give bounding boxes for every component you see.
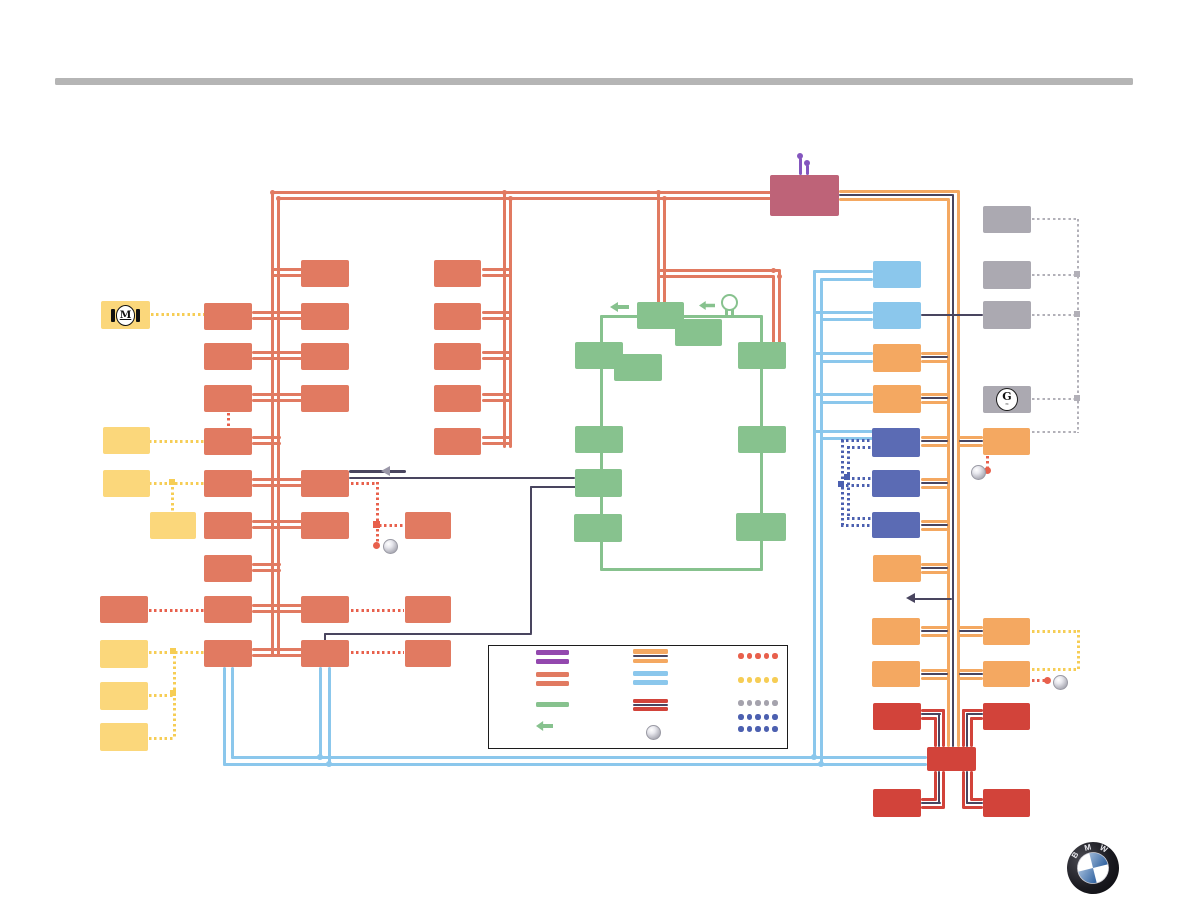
bus-line [509, 197, 512, 448]
motor-letter: M [116, 305, 136, 326]
ecu-block[interactable] [872, 512, 920, 538]
bus-line [277, 197, 771, 200]
dotted-link [351, 651, 404, 654]
bus-line [921, 630, 948, 632]
bus-line [839, 198, 949, 201]
bus-line [957, 190, 960, 747]
bus-line [921, 563, 948, 566]
ecu-block[interactable] [872, 618, 920, 645]
ecu-block[interactable] [103, 427, 150, 454]
junction-square [373, 521, 380, 528]
dotted-link [1032, 668, 1078, 671]
ecu-block[interactable] [301, 303, 349, 330]
ecu-block[interactable] [301, 385, 349, 412]
bus-line [252, 484, 302, 487]
bus-line [921, 478, 948, 481]
junction-dot [326, 761, 332, 767]
bus-line [272, 274, 302, 277]
dotted-link [847, 446, 850, 519]
bus-line [252, 357, 302, 360]
bus-line [921, 524, 948, 526]
bus-line [970, 717, 973, 747]
bus-line [921, 634, 948, 637]
bus-line [942, 709, 945, 747]
central-gateway-block[interactable] [770, 175, 839, 216]
dotted-link [149, 651, 204, 654]
dotted-link [379, 524, 405, 527]
bus-system-diagram: MG≈BMW [0, 0, 1188, 918]
dotted-link [351, 482, 377, 485]
ecu-block[interactable] [204, 596, 252, 623]
dotted-link [847, 446, 872, 449]
bus-line [934, 717, 937, 747]
bus-line [921, 802, 941, 804]
ecu-block[interactable] [872, 428, 920, 457]
ecu-block[interactable] [301, 640, 349, 667]
ecu-block[interactable] [405, 640, 451, 667]
bus-line [921, 352, 948, 355]
bus-line [328, 667, 331, 766]
bus-line [252, 442, 281, 445]
bus-line [959, 630, 983, 632]
dotted-link [1032, 630, 1078, 633]
dotted-link [841, 439, 872, 442]
bus-line [959, 440, 983, 442]
junction-square [1074, 395, 1080, 401]
bus-line [921, 528, 948, 531]
bus-line [921, 436, 948, 439]
dotted-link [841, 484, 872, 487]
bus-line [921, 401, 948, 404]
ecu-block[interactable] [983, 789, 1030, 817]
bus-line [813, 393, 873, 396]
bus-line [952, 194, 954, 747]
dotted-link [351, 609, 404, 612]
bus-line [820, 278, 873, 281]
dotted-link [1032, 314, 1078, 316]
bus-line [959, 436, 983, 439]
junction-square [838, 481, 844, 487]
dotted-link [149, 737, 175, 740]
ring-loop-icon [721, 294, 738, 311]
bus-line [252, 399, 302, 402]
junction-dot [811, 754, 817, 760]
ecu-block[interactable] [575, 469, 622, 497]
bus-line [252, 526, 302, 529]
ecu-block[interactable] [204, 470, 252, 497]
legend-box [488, 645, 788, 749]
ecu-block[interactable] [983, 261, 1031, 289]
junction-dot [797, 153, 803, 159]
bus-line [813, 270, 816, 759]
ecu-block[interactable] [100, 682, 148, 710]
ecu-block[interactable] [873, 555, 921, 582]
bus-line [252, 610, 302, 613]
bus-line [921, 486, 948, 489]
ecu-block[interactable] [873, 385, 921, 413]
junction-dot [373, 542, 380, 549]
bus-line [959, 444, 983, 447]
bus-line [349, 470, 406, 473]
dotted-link [847, 477, 872, 480]
junction-dot [276, 196, 281, 201]
bus-line [482, 317, 511, 320]
ecu-block[interactable] [204, 343, 252, 370]
bus-line [482, 351, 511, 354]
ecu-block[interactable] [204, 640, 252, 667]
bus-line [503, 191, 506, 448]
dotted-link [151, 313, 204, 316]
bus-line [966, 713, 968, 747]
bus-line [482, 436, 511, 439]
bus-line [252, 317, 302, 320]
bus-line [778, 269, 781, 345]
bus-line [921, 806, 945, 809]
bus-line [911, 598, 952, 600]
bus-line [482, 311, 511, 314]
dotted-link [376, 482, 379, 542]
bus-line [530, 486, 532, 634]
ecu-block[interactable] [983, 206, 1031, 233]
bus-line [921, 520, 948, 523]
motor-bracket [111, 309, 115, 322]
junction-square [170, 648, 176, 654]
bus-line [252, 604, 302, 607]
motor-icon: M [111, 305, 140, 325]
ecu-block[interactable] [675, 319, 722, 346]
bus-line [839, 190, 959, 193]
bus-line [970, 798, 983, 801]
bus-line [799, 158, 802, 175]
bus-line [921, 626, 948, 629]
bmw-roundel-icon: BMW [1060, 835, 1125, 900]
bus-line [482, 268, 511, 271]
bus-line [962, 806, 983, 809]
generator-circle: G≈ [996, 388, 1018, 411]
bus-line [921, 397, 948, 399]
ecu-block[interactable] [736, 513, 786, 541]
ecu-block[interactable] [873, 789, 921, 817]
bus-line [947, 198, 950, 747]
bus-line [272, 268, 302, 271]
direction-arrow-icon [699, 301, 715, 310]
bus-line [966, 771, 968, 804]
ecu-block[interactable] [983, 661, 1030, 687]
ecu-block[interactable] [434, 303, 481, 330]
hub-block[interactable] [927, 747, 976, 771]
ecu-block[interactable] [614, 354, 662, 381]
ecu-block[interactable] [575, 426, 623, 453]
bus-line [962, 709, 965, 747]
bus-line [231, 667, 234, 759]
dotted-link [1077, 630, 1080, 670]
bus-line [657, 191, 660, 304]
bus-line [962, 709, 983, 712]
bmw-logo: BMW [1066, 841, 1120, 895]
bus-line [813, 311, 873, 314]
generator-wave: ≈ [1005, 402, 1008, 408]
bus-line [934, 771, 937, 800]
bus-line [482, 399, 511, 402]
bus-line [938, 771, 940, 804]
bus-line [277, 197, 280, 656]
ecu-block[interactable] [873, 344, 921, 372]
bus-line [966, 802, 983, 804]
bus-line [659, 269, 780, 272]
ecu-block[interactable] [204, 555, 252, 582]
dotted-link [1032, 431, 1078, 433]
ecu-block[interactable] [301, 343, 349, 370]
dotted-link [149, 609, 204, 612]
bus-line [813, 430, 873, 433]
bus-line [252, 520, 302, 523]
bus-line [252, 654, 302, 657]
bus-line [962, 771, 965, 808]
bus-line [252, 436, 281, 439]
ecu-block[interactable] [100, 596, 148, 623]
bus-line [271, 191, 274, 656]
ecu-block[interactable] [873, 302, 921, 329]
ecu-block[interactable] [434, 428, 481, 455]
junction-dot [502, 190, 507, 195]
bus-line [959, 673, 983, 675]
direction-arrow-icon [381, 466, 390, 476]
bus-line [271, 191, 773, 194]
bus-line [921, 444, 948, 447]
ecu-block[interactable] [100, 723, 148, 751]
bus-line [938, 713, 940, 747]
bus-line [813, 270, 873, 273]
ecu-block[interactable] [301, 596, 349, 623]
bulb-icon [1053, 675, 1068, 690]
bus-line [252, 351, 302, 354]
bus-line [252, 393, 302, 396]
motor-bracket [136, 309, 140, 322]
dotted-link [171, 482, 174, 514]
ecu-block[interactable] [434, 343, 481, 370]
bulb-icon [971, 465, 986, 480]
junction-dot [818, 761, 824, 767]
junction-dot [270, 190, 275, 195]
junction-square [169, 479, 175, 485]
bus-line [319, 667, 322, 759]
ecu-block[interactable] [738, 426, 786, 453]
junction-square [170, 690, 176, 696]
ecu-block[interactable] [872, 661, 920, 687]
bus-line [921, 567, 948, 569]
junction-dot [1044, 677, 1051, 684]
bus-line [600, 568, 763, 571]
bus-line [482, 442, 511, 445]
bus-line [921, 677, 948, 680]
bus-line [820, 318, 873, 321]
ecu-block[interactable] [873, 703, 921, 730]
bus-line [839, 194, 953, 196]
ecu-block[interactable] [301, 470, 349, 497]
dotted-link [1032, 398, 1078, 400]
ecu-block[interactable] [405, 512, 451, 539]
dotted-link [847, 517, 872, 520]
ecu-block[interactable] [983, 618, 1030, 645]
junction-dot [656, 190, 661, 195]
junction-dot [777, 274, 782, 279]
bus-line [959, 677, 983, 680]
bus-line [921, 356, 948, 358]
dotted-link [227, 413, 230, 429]
bus-line [223, 667, 226, 766]
ecu-block[interactable] [873, 261, 921, 288]
header-rule [55, 78, 1133, 85]
junction-dot [317, 754, 323, 760]
ecu-block[interactable] [434, 260, 481, 287]
bus-line [959, 669, 983, 672]
dotted-link [149, 482, 204, 485]
bus-line [663, 197, 666, 304]
junction-dot [662, 196, 667, 201]
ecu-block[interactable] [872, 470, 920, 497]
ecu-block[interactable] [150, 512, 196, 539]
bus-line [252, 648, 302, 651]
ecu-block[interactable] [574, 514, 622, 542]
bus-line [921, 798, 937, 801]
bus-line [252, 569, 281, 572]
bus-line [252, 311, 302, 314]
bus-line [482, 393, 511, 396]
bulb-icon [383, 539, 398, 554]
bus-line [921, 314, 983, 316]
dotted-link [1032, 218, 1078, 220]
ecu-block[interactable] [434, 385, 481, 412]
bus-line [921, 360, 948, 363]
bus-line [921, 669, 948, 672]
dotted-link [149, 440, 204, 443]
ecu-block[interactable] [738, 342, 786, 369]
bus-line [921, 393, 948, 396]
bus-line [806, 165, 809, 175]
bus-line [921, 440, 948, 442]
bus-line [659, 275, 774, 278]
junction-dot [771, 268, 776, 273]
bus-line [813, 352, 873, 355]
ecu-block[interactable] [204, 385, 252, 412]
ecu-block[interactable] [983, 301, 1031, 329]
bus-line [349, 477, 575, 479]
bus-line [921, 571, 948, 574]
ecu-block[interactable] [301, 260, 349, 287]
junction-dot [508, 196, 513, 201]
direction-arrow-icon [610, 302, 629, 312]
bus-line [959, 634, 983, 637]
dotted-link [1032, 274, 1078, 276]
bus-line [324, 633, 532, 635]
bus-line [772, 275, 775, 345]
ecu-block[interactable] [103, 470, 150, 497]
ecu-block[interactable] [983, 703, 1030, 730]
ecu-block[interactable] [100, 640, 148, 668]
bus-line [820, 401, 873, 404]
junction-square [844, 474, 850, 480]
junction-square [1074, 311, 1080, 317]
bus-line [921, 482, 948, 484]
bus-line [942, 771, 945, 808]
bus-line [959, 626, 983, 629]
bus-line [970, 771, 973, 800]
junction-square [1074, 271, 1080, 277]
ecu-block[interactable] [301, 512, 349, 539]
bus-line [530, 486, 576, 488]
bus-line [921, 673, 948, 675]
junction-dot [804, 160, 810, 166]
ecu-block[interactable] [405, 596, 451, 623]
ecu-block[interactable] [204, 303, 252, 330]
dotted-link [841, 524, 872, 527]
generator-icon: G≈ [996, 388, 1018, 410]
ecu-block[interactable] [204, 428, 252, 455]
ecu-block[interactable] [204, 512, 252, 539]
ecu-block[interactable] [983, 428, 1030, 455]
bus-line [820, 360, 873, 363]
bus-line [252, 563, 281, 566]
bus-line [482, 274, 511, 277]
bus-line [966, 713, 983, 715]
direction-arrow-icon [906, 593, 915, 603]
bus-line [252, 478, 302, 481]
bus-line [231, 756, 927, 759]
bus-line [482, 357, 511, 360]
